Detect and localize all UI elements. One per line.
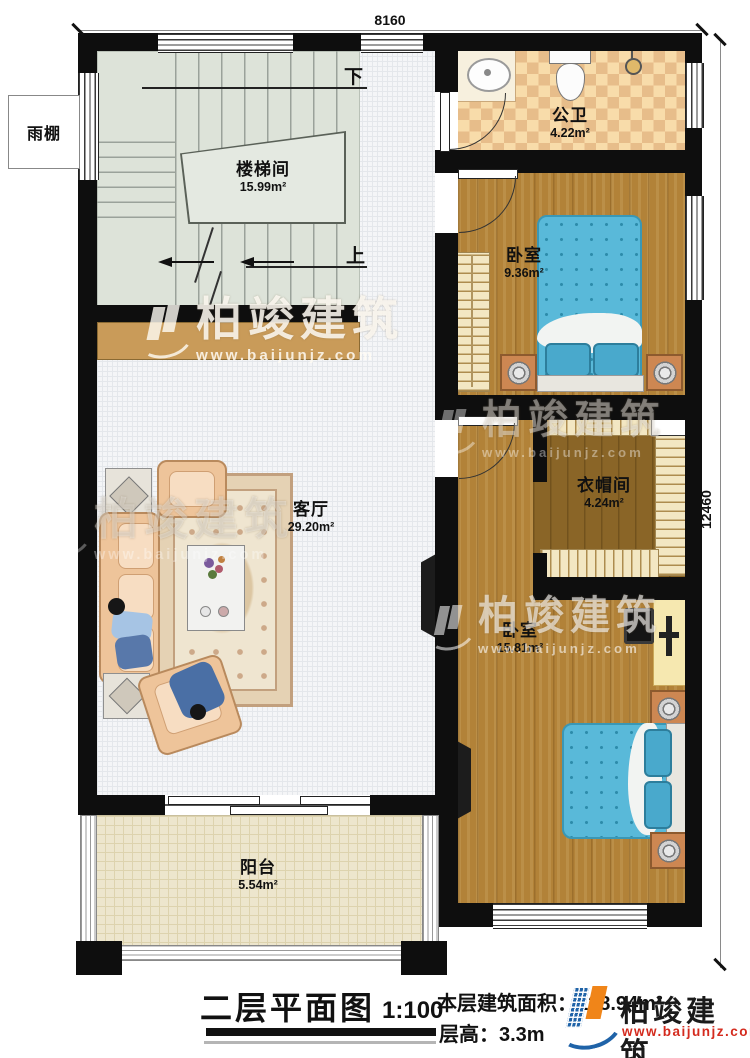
window xyxy=(685,196,704,300)
stair-arrow-line xyxy=(172,261,214,263)
sink-icon xyxy=(467,58,511,92)
desk-lamp-icon xyxy=(659,632,679,638)
nightstand xyxy=(646,354,683,391)
wall xyxy=(370,795,458,815)
table-lamp-icon xyxy=(109,476,149,516)
living-room-label: 客厅 29.20m² xyxy=(266,500,356,534)
cloakroom-label: 衣帽间 4.24m² xyxy=(559,476,649,510)
wall xyxy=(78,33,97,73)
window xyxy=(78,73,99,180)
dimension-top: 8160 xyxy=(355,12,425,28)
room-name: 公卫 xyxy=(525,106,615,126)
wall xyxy=(78,305,358,322)
room-area: 9.36m² xyxy=(479,266,569,280)
stair-direction-arrow xyxy=(158,257,172,267)
dimension-line-right xyxy=(720,40,721,968)
stair-landing-treads xyxy=(97,140,175,218)
room-area: 15.81m² xyxy=(475,641,565,655)
nightstand xyxy=(500,354,537,391)
coffee-table xyxy=(187,545,245,631)
stair-guide-line-down xyxy=(142,87,367,89)
brand-logo: 柏竣建筑 www.baijunjz.com xyxy=(558,982,750,1052)
window xyxy=(685,63,704,128)
room-area: 5.54m² xyxy=(213,878,303,892)
bathroom-label: 公卫 4.22m² xyxy=(525,106,615,140)
rain-canopy: 雨棚 xyxy=(8,95,80,169)
column xyxy=(76,941,122,975)
wall xyxy=(78,180,97,815)
tv-icon xyxy=(457,741,471,819)
wall xyxy=(533,577,685,600)
wall xyxy=(685,128,702,196)
title-underline xyxy=(206,1028,436,1036)
room-area: 15.99m² xyxy=(208,180,318,194)
pillow xyxy=(545,343,591,377)
person-figure xyxy=(168,660,228,726)
wall xyxy=(685,33,702,63)
door-opening xyxy=(435,420,458,477)
sliding-door-panel xyxy=(230,806,328,815)
room-name: 卧室 xyxy=(475,621,565,641)
floor-height-line: 层高：3.3m xyxy=(439,1018,545,1047)
bedroom1-label: 卧室 9.36m² xyxy=(479,246,569,280)
stair-arrow-line xyxy=(254,261,294,263)
shower-head xyxy=(625,58,642,75)
tv-icon xyxy=(624,608,654,644)
window xyxy=(493,903,647,929)
brand-site: www.baijunjz.com xyxy=(622,1024,750,1039)
floor-plan: 楼梯间 15.99m² xyxy=(0,0,750,1058)
wardrobe xyxy=(540,549,659,579)
sliding-door-panel xyxy=(300,796,372,805)
wall xyxy=(435,233,458,415)
window xyxy=(361,33,423,53)
door-opening xyxy=(435,173,458,233)
balcony-label: 阳台 5.54m² xyxy=(213,858,303,892)
bed xyxy=(537,215,642,390)
stairs-down-label: 下 xyxy=(344,62,363,89)
wall xyxy=(435,51,458,92)
person-figure xyxy=(108,598,154,674)
stair-direction-arrow xyxy=(240,257,254,267)
pillow xyxy=(644,781,672,829)
nightstand xyxy=(650,832,687,869)
room-name: 雨棚 xyxy=(9,120,79,144)
pillow xyxy=(593,343,639,377)
wardrobe xyxy=(655,432,687,576)
dimension-line-top xyxy=(78,30,702,31)
room-name: 客厅 xyxy=(266,500,356,520)
dimension-right: 12460 xyxy=(698,465,718,555)
sliding-door-panel xyxy=(168,796,260,805)
brand-name: 柏竣建筑 xyxy=(620,988,750,1058)
wall xyxy=(533,420,547,482)
bed xyxy=(562,723,685,835)
stairs-up-label: 上 xyxy=(346,241,365,268)
balcony-railing xyxy=(422,815,439,947)
title-underline xyxy=(204,1041,436,1044)
wall xyxy=(78,795,165,815)
bedroom2-label: 卧室 15.81m² xyxy=(475,621,565,655)
room-name: 衣帽间 xyxy=(559,476,649,496)
toilet-icon xyxy=(549,49,591,64)
wall xyxy=(435,477,458,795)
plan-title: 二层平面图 xyxy=(200,983,375,1029)
wall xyxy=(293,33,361,51)
pillow xyxy=(644,729,672,777)
armchair xyxy=(157,460,227,518)
tv-icon xyxy=(421,554,436,638)
wall xyxy=(685,300,702,903)
room-name: 楼梯间 xyxy=(208,160,318,180)
plan-scale: 1:100 xyxy=(382,997,443,1025)
brand-logo-icon xyxy=(558,986,614,1045)
window xyxy=(158,33,293,53)
wall xyxy=(435,903,493,927)
room-name: 阳台 xyxy=(213,858,303,878)
room-name: 卧室 xyxy=(479,246,569,266)
balcony-railing xyxy=(80,815,97,947)
column xyxy=(401,941,447,975)
room-area: 29.20m² xyxy=(266,520,356,534)
room-area: 4.24m² xyxy=(559,496,649,510)
cabinet-band xyxy=(97,322,360,360)
nightstand xyxy=(650,690,687,727)
wall xyxy=(647,903,702,927)
balcony-railing xyxy=(80,945,439,961)
stairwell-label: 楼梯间 15.99m² xyxy=(208,160,318,194)
wall xyxy=(423,33,702,51)
headboard xyxy=(537,375,644,392)
room-area: 4.22m² xyxy=(525,126,615,140)
